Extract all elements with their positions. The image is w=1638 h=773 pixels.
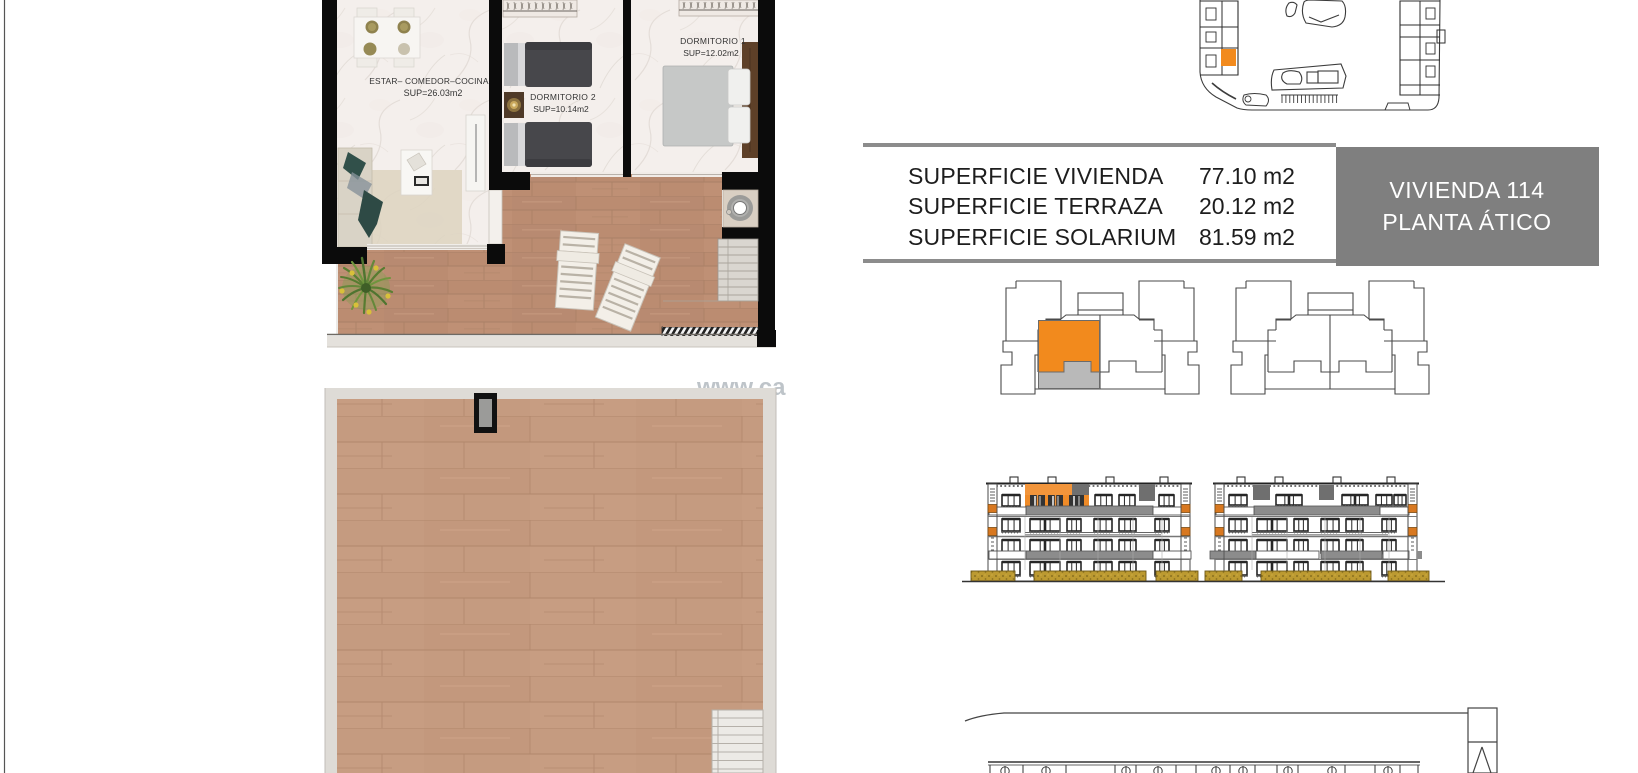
svg-text:77.10 m2: 77.10 m2 [1199, 163, 1295, 189]
svg-text:SUPERFICIE VIVIENDA: SUPERFICIE VIVIENDA [908, 163, 1164, 189]
svg-text:SUPERFICIE SOLARIUM: SUPERFICIE SOLARIUM [908, 224, 1176, 250]
svg-text:SUP=26.03m2: SUP=26.03m2 [404, 88, 463, 98]
svg-text:SUP=10.14m2: SUP=10.14m2 [533, 104, 589, 114]
svg-text:81.59 m2: 81.59 m2 [1199, 224, 1295, 250]
svg-text:SUPERFICIE TERRAZA: SUPERFICIE TERRAZA [908, 193, 1163, 219]
svg-text:VIVIENDA 114: VIVIENDA 114 [1389, 177, 1544, 203]
svg-text:DORMITORIO 1: DORMITORIO 1 [680, 36, 746, 46]
svg-text:ESTAR– COMEDOR–COCINA: ESTAR– COMEDOR–COCINA [369, 76, 489, 86]
svg-text:PLANTA ÁTICO: PLANTA ÁTICO [1382, 209, 1551, 235]
svg-text:20.12 m2: 20.12 m2 [1199, 193, 1295, 219]
svg-text:SUP=12.02m2: SUP=12.02m2 [683, 48, 739, 58]
svg-text:DORMITORIO 2: DORMITORIO 2 [530, 92, 596, 102]
